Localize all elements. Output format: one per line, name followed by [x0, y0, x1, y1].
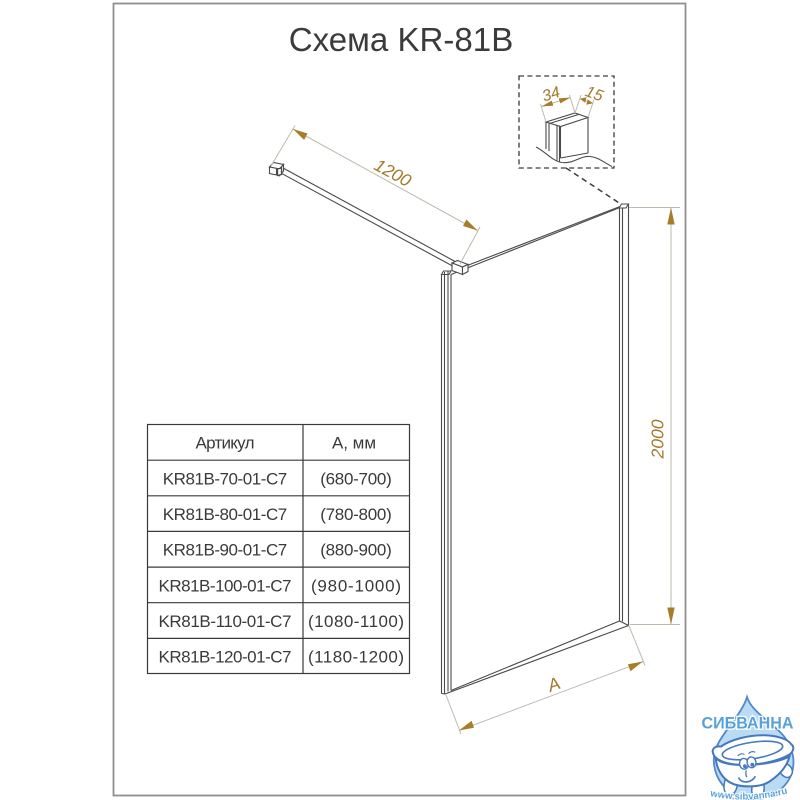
svg-text:Артикул: Артикул: [196, 434, 255, 453]
svg-text:KR81B-90-01-C7: KR81B-90-01-C7: [163, 541, 288, 560]
svg-text:KR81B-110-01-C7: KR81B-110-01-C7: [159, 612, 292, 631]
svg-text:СИБВАННА: СИБВАННА: [702, 715, 794, 733]
svg-text:KR81B-100-01-C7: KR81B-100-01-C7: [159, 577, 292, 596]
svg-text:(1080-1100): (1080-1100): [308, 612, 404, 631]
svg-text:(980-1000): (980-1000): [311, 577, 401, 596]
svg-text:KR81B-80-01-C7: KR81B-80-01-C7: [163, 505, 288, 524]
svg-text:А, мм: А, мм: [332, 434, 376, 453]
svg-text:(680-700): (680-700): [320, 470, 392, 489]
svg-text:2000: 2000: [648, 419, 668, 459]
svg-text:Схема KR-81B: Схема KR-81B: [289, 21, 514, 58]
svg-text:1200: 1200: [371, 155, 415, 191]
svg-text:KR81B-70-01-C7: KR81B-70-01-C7: [163, 470, 288, 489]
svg-text:KR81B-120-01-C7: KR81B-120-01-C7: [159, 648, 292, 667]
svg-text:A: A: [544, 673, 563, 696]
svg-text:(780-800): (780-800): [320, 505, 392, 524]
svg-text:(1180-1200): (1180-1200): [308, 648, 404, 667]
svg-text:(880-900): (880-900): [320, 541, 392, 560]
